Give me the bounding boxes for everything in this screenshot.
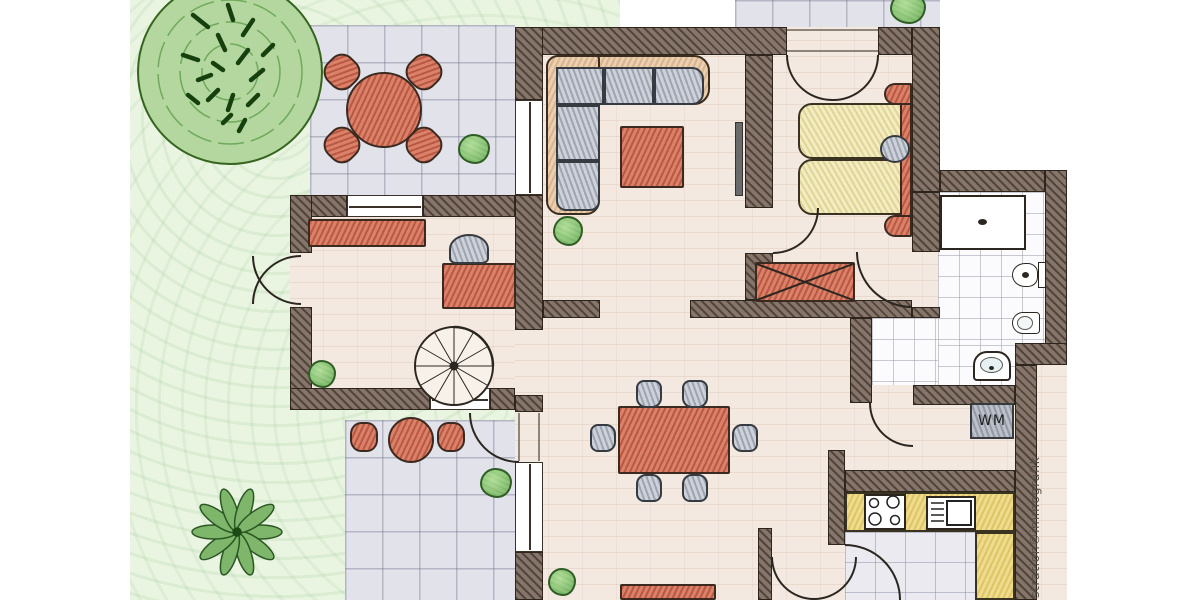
- bathroom-floor-west: [872, 318, 938, 385]
- toilet-drain: [1022, 272, 1029, 278]
- kitchen-counter-right: [975, 532, 1015, 600]
- dining-table: [618, 406, 730, 474]
- sofa-cushion-5: [556, 161, 600, 211]
- wall-west-3: [515, 395, 543, 412]
- wall-bathroom-north: [940, 170, 1045, 192]
- dining-chair-5: [590, 424, 616, 452]
- wall-kitchen-stub: [828, 450, 845, 545]
- wall-hall-stub: [758, 528, 772, 600]
- sofa-cushion-corner: [556, 67, 604, 105]
- stove: [864, 494, 906, 530]
- dining-chair-1: [636, 380, 662, 408]
- wall-bedroom-bathroom-a: [912, 192, 940, 252]
- wall-top-right: [878, 27, 912, 55]
- wall-bathroom-south: [913, 385, 1015, 405]
- office-sideboard: [308, 219, 426, 247]
- desk: [442, 263, 516, 309]
- wall-step-east: [1015, 343, 1067, 365]
- terrace-bottom-chair-1: [350, 422, 378, 452]
- window-office-north: [347, 195, 423, 217]
- living-room-plant: [553, 216, 583, 246]
- sofa-cushion-2: [604, 67, 654, 105]
- terrace-bottom-bush: [480, 468, 512, 498]
- dining-chair-4: [682, 474, 708, 502]
- nightstand-bottom: [884, 215, 912, 237]
- terrace-top-bush: [458, 134, 490, 164]
- floor-plan-canvas: WM: [0, 0, 1200, 600]
- wall-office-south-b: [490, 388, 515, 410]
- terrace-bottom-chair-2: [437, 422, 465, 452]
- wall-kitchen-north: [845, 470, 1015, 492]
- wall-bedroom-east: [912, 27, 940, 192]
- terrace-bottom-table: [388, 417, 434, 463]
- wall-office-south-a: [290, 388, 430, 410]
- wall-bathroom-east: [1045, 170, 1067, 365]
- nightstand-top: [884, 83, 912, 105]
- toilet-tank: [1038, 262, 1046, 288]
- dining-chair-2: [682, 380, 708, 408]
- wall-west-2: [515, 195, 543, 330]
- wardrobe: [755, 262, 855, 302]
- bidet-basin: [1017, 316, 1033, 330]
- shower-drain: [978, 219, 987, 225]
- window-dining-west: [515, 462, 543, 552]
- desk-chair: [449, 234, 489, 264]
- sofa-cushion-3: [654, 67, 704, 105]
- office-plant: [308, 360, 336, 388]
- bed-pillow: [880, 135, 910, 163]
- kitchen-floor: [845, 532, 975, 600]
- wall-bathroom-west-low: [850, 318, 872, 403]
- washbasin-bowl: [980, 357, 1003, 373]
- washing-machine-label: WM: [978, 413, 1006, 429]
- window-office-south: [430, 388, 490, 410]
- window-living-west: [515, 100, 543, 195]
- wall-office-north-b: [423, 195, 515, 217]
- wall-west-1: [515, 27, 543, 100]
- dining-chair-3: [636, 474, 662, 502]
- dining-plant: [548, 568, 576, 596]
- wall-top: [515, 27, 787, 55]
- tv-board: [735, 122, 743, 196]
- wall-living-bedroom-a: [745, 55, 773, 208]
- kitchen-sink: [926, 496, 976, 530]
- wall-bedroom-bathroom-b: [912, 307, 940, 318]
- sofa-cushion-4: [556, 105, 600, 161]
- bed-mattress-bottom: [798, 159, 910, 215]
- dining-sideboard: [620, 584, 716, 600]
- dining-chair-6: [732, 424, 758, 452]
- wall-living-south-b: [690, 300, 912, 318]
- washing-machine: WM: [970, 403, 1014, 439]
- wall-west-4: [515, 552, 543, 600]
- washbasin-drain: [989, 366, 994, 370]
- wall-living-south-a: [543, 300, 600, 318]
- coffee-table: [620, 126, 684, 188]
- watermark-credit: stration©immografik: [1027, 428, 1042, 598]
